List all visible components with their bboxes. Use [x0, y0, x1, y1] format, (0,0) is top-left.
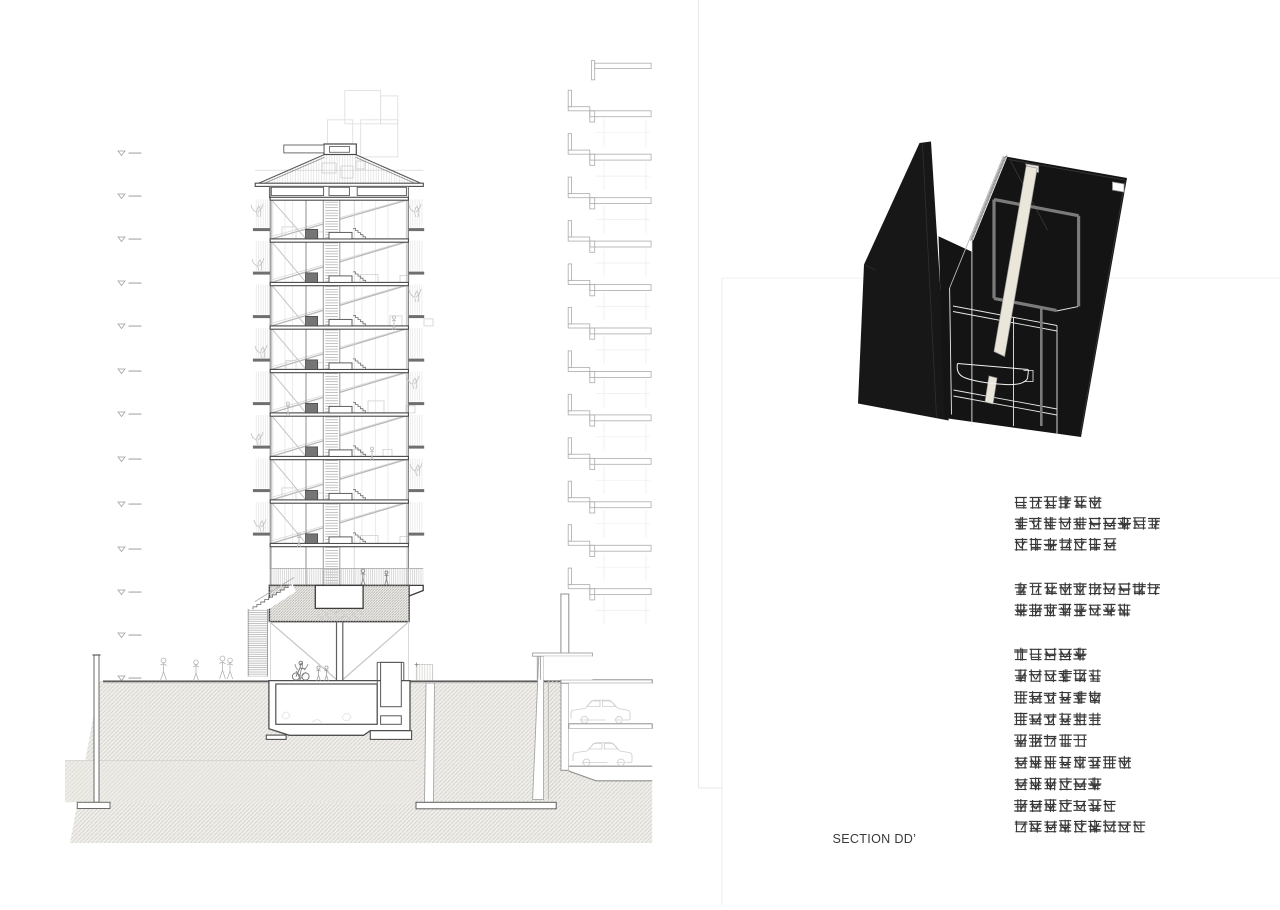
svg-text:SECTION DD’: SECTION DD’: [833, 832, 917, 846]
